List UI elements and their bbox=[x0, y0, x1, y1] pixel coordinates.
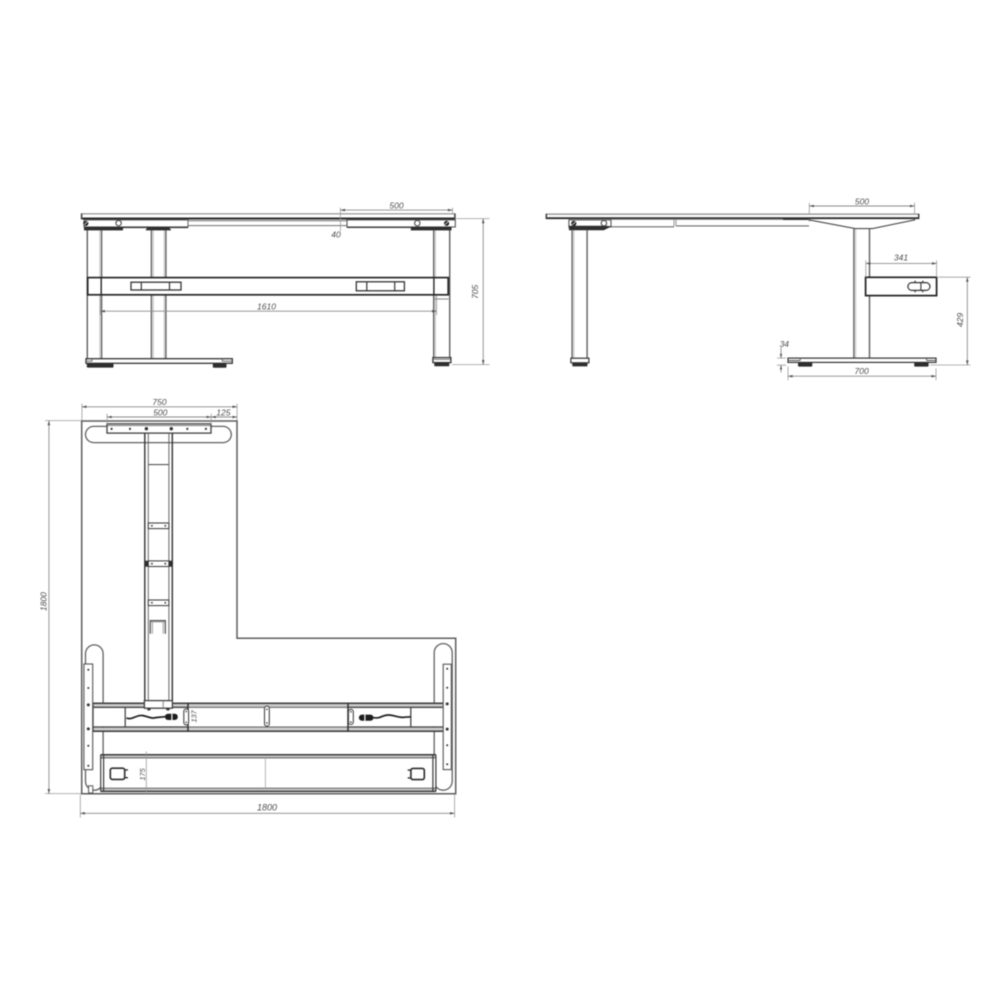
svg-text:125: 125 bbox=[216, 408, 230, 418]
svg-text:137: 137 bbox=[190, 709, 199, 722]
svg-text:705: 705 bbox=[470, 284, 480, 298]
svg-text:429: 429 bbox=[955, 313, 965, 327]
svg-text:1800: 1800 bbox=[257, 802, 277, 812]
svg-text:500: 500 bbox=[389, 200, 403, 210]
svg-text:341: 341 bbox=[894, 252, 908, 262]
svg-text:1800: 1800 bbox=[39, 592, 49, 611]
svg-text:750: 750 bbox=[152, 397, 166, 407]
svg-text:34: 34 bbox=[780, 339, 790, 349]
svg-text:1610: 1610 bbox=[257, 301, 276, 311]
svg-text:40: 40 bbox=[331, 229, 341, 239]
svg-text:500: 500 bbox=[153, 407, 167, 417]
svg-text:700: 700 bbox=[855, 366, 869, 376]
svg-text:175: 175 bbox=[138, 767, 147, 780]
svg-text:500: 500 bbox=[855, 196, 869, 206]
